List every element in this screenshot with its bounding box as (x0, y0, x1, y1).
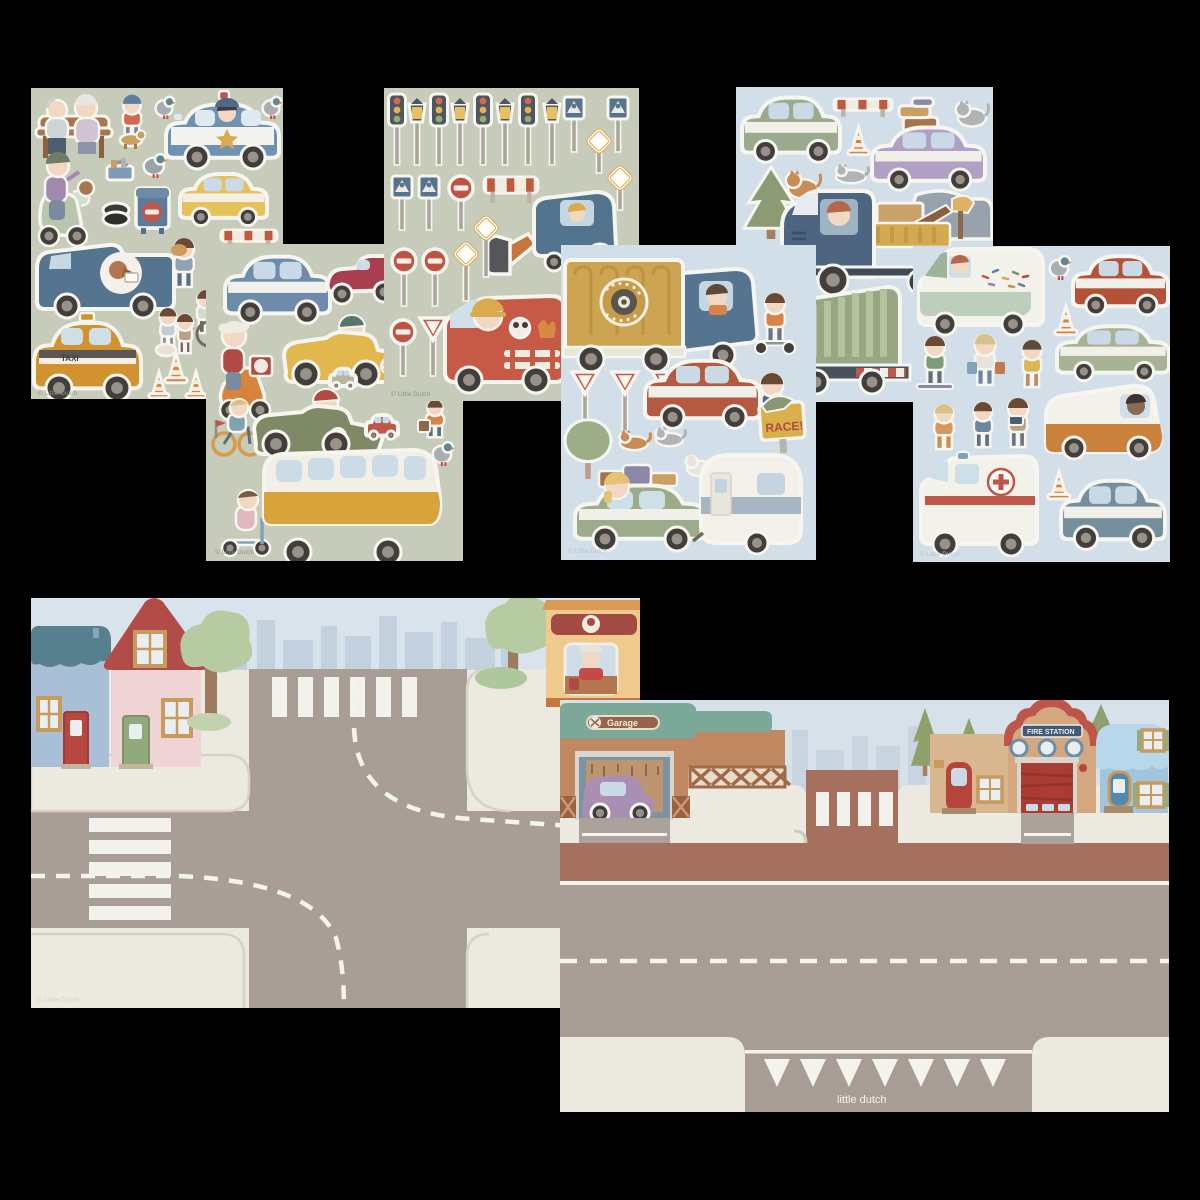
svg-text:© Little Dutch: © Little Dutch (920, 550, 959, 558)
svg-text:Garage: Garage (607, 718, 638, 728)
svg-text:© Little Dutch: © Little Dutch (568, 547, 607, 555)
svg-text:© Little Dutch: © Little Dutch (37, 996, 79, 1004)
svg-text:RACE!: RACE! (765, 419, 804, 436)
svg-text:© Little Dutch: © Little Dutch (38, 389, 77, 397)
svg-text:TAXI: TAXI (61, 354, 79, 363)
svg-text:© Little Dutch: © Little Dutch (215, 548, 254, 556)
svg-text:© Little Dutch: © Little Dutch (391, 390, 430, 398)
svg-text:little dutch: little dutch (837, 1094, 887, 1106)
svg-text:FIRE STATION: FIRE STATION (1027, 729, 1075, 736)
